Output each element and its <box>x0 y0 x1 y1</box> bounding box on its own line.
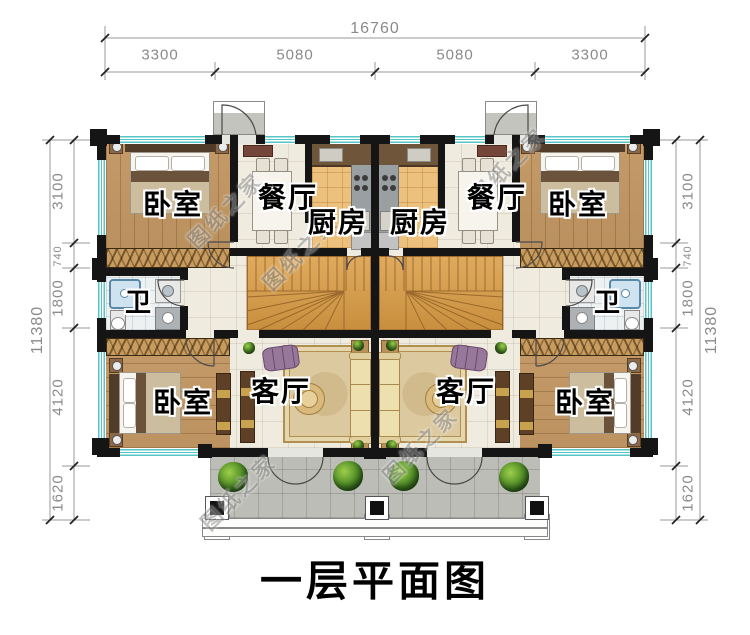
room-label-bath: 卫 <box>125 283 153 320</box>
door-swing-arcs <box>158 105 361 484</box>
dim-top-seg: 3300 <box>571 47 608 64</box>
dim-top-seg: 3300 <box>141 47 178 64</box>
room-label-bedroom: 卧室 <box>153 381 213 421</box>
wall-pilaster <box>198 444 212 458</box>
dim-left-seg: 740 <box>52 245 64 266</box>
room-label-kitchen: 厨房 <box>390 201 450 241</box>
dim-right-seg: 3100 <box>680 172 697 209</box>
wall-pilaster <box>646 258 658 280</box>
dim-right-total: 11380 <box>703 306 721 354</box>
porch-column <box>525 496 549 520</box>
wall-pilaster <box>364 448 386 459</box>
dim-left-seg: 3100 <box>50 172 67 209</box>
room-label-bedroom: 卧室 <box>548 183 608 223</box>
dim-left-total: 11380 <box>29 306 47 354</box>
floor-plan-canvas: 图纸之家 图纸之家 图纸之家 图纸之家 图纸之家 卧室 卧室 餐厅 餐厅 厨房 … <box>0 0 750 635</box>
plan-title: 一层平面图 <box>260 548 490 609</box>
wall-pilaster <box>90 129 107 146</box>
dim-top-seg: 5080 <box>436 47 473 64</box>
wall-pilaster <box>643 129 660 146</box>
room-label-kitchen: 厨房 <box>308 201 368 241</box>
dim-left-seg: 1620 <box>50 474 67 511</box>
wall-pilaster <box>538 444 552 458</box>
dim-top-seg: 5080 <box>276 47 313 64</box>
dim-right-seg: 1620 <box>680 474 697 511</box>
dim-left-seg: 4120 <box>50 378 67 415</box>
dim-top-total: 16760 <box>350 20 400 38</box>
room-label-dining: 餐厅 <box>467 176 527 216</box>
wall-pilaster <box>641 438 658 455</box>
porch-column <box>365 496 389 520</box>
dim-right-seg: 4120 <box>680 378 697 415</box>
room-label-living: 客厅 <box>251 370 311 410</box>
wall-pilaster <box>92 438 109 455</box>
room-label-living: 客厅 <box>436 370 496 410</box>
dim-left-seg: 1800 <box>50 279 67 316</box>
room-label-bath: 卫 <box>594 283 622 320</box>
room-label-bedroom: 卧室 <box>555 381 615 421</box>
wall-pilaster <box>92 258 104 280</box>
dim-right-seg: 740 <box>682 245 694 266</box>
entry-steps <box>202 528 548 537</box>
room-label-bedroom: 卧室 <box>143 183 203 223</box>
dim-right-seg: 1800 <box>680 279 697 316</box>
